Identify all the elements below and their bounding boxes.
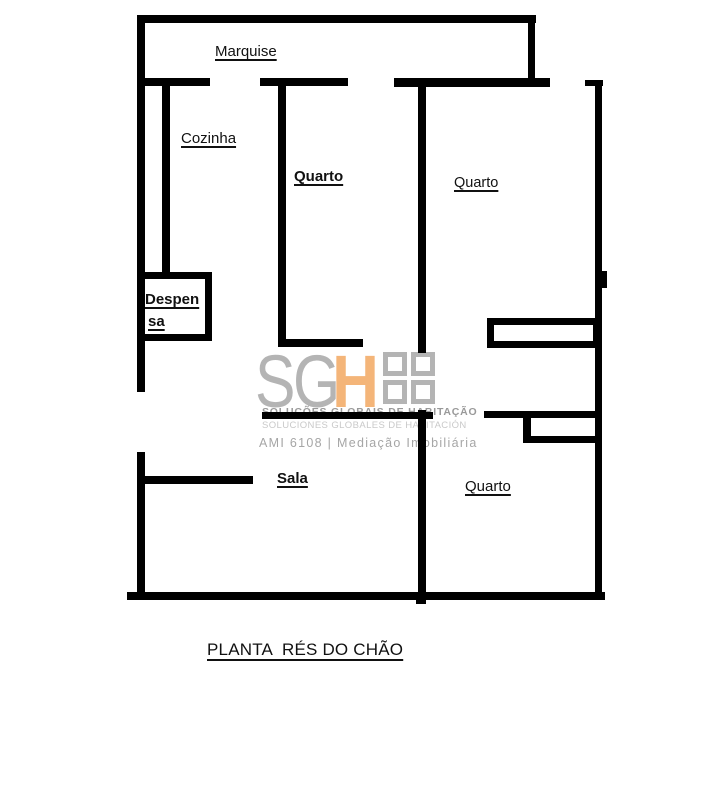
label-quarto-top-left: Quarto: [294, 168, 343, 185]
brand-tagline-es: SOLUCIONES GLOBALES DE HABITACIÓN: [262, 420, 467, 431]
plan-title: PLANTA RÉS DO CHÃO: [207, 640, 403, 660]
label-quarto-top-right: Quarto: [454, 175, 498, 192]
wall-top-cozinha: [137, 78, 210, 86]
wall-center-upper: [418, 83, 426, 353]
wall-quarto-br-top: [484, 411, 602, 418]
logo-square: [383, 380, 407, 404]
label-marquise: Marquise: [215, 43, 277, 60]
floor-plan: SG H SOLUÇÕES GLOBAIS DE HABITAÇÃO SOLUC…: [0, 0, 713, 811]
wall-hall-south: [262, 412, 433, 419]
wall-right-notch: [600, 271, 607, 288]
wall-cozinha-inner: [162, 83, 170, 274]
wall-marquise-top: [137, 15, 536, 23]
logo-square: [411, 352, 435, 376]
logo-square: [411, 380, 435, 404]
brand-logo-squares-icon: [383, 352, 435, 404]
label-despensa-line1: Despen: [145, 291, 199, 308]
wall-top-quarto-left: [260, 78, 348, 86]
wardrobe-top-right: [487, 318, 600, 348]
label-cozinha: Cozinha: [181, 130, 236, 147]
wall-bottom-stub: [416, 600, 426, 604]
wall-marquise-right: [528, 15, 535, 85]
brand-license-text: AMI 6108 | Mediação Imobiliária: [259, 436, 478, 450]
label-sala: Sala: [277, 470, 308, 487]
logo-square: [383, 352, 407, 376]
wall-sala-partition: [138, 476, 253, 484]
wall-left-lower: [137, 452, 145, 600]
wall-center-lower: [418, 410, 426, 600]
label-despensa-line2: sa: [148, 313, 165, 330]
wall-closet-br-bottom: [523, 436, 602, 443]
wall-quarto-left-side: [278, 83, 286, 346]
wall-bottom: [127, 592, 605, 600]
wall-quarto-left-bottom: [278, 339, 363, 347]
label-quarto-bottom-right: Quarto: [465, 478, 511, 495]
